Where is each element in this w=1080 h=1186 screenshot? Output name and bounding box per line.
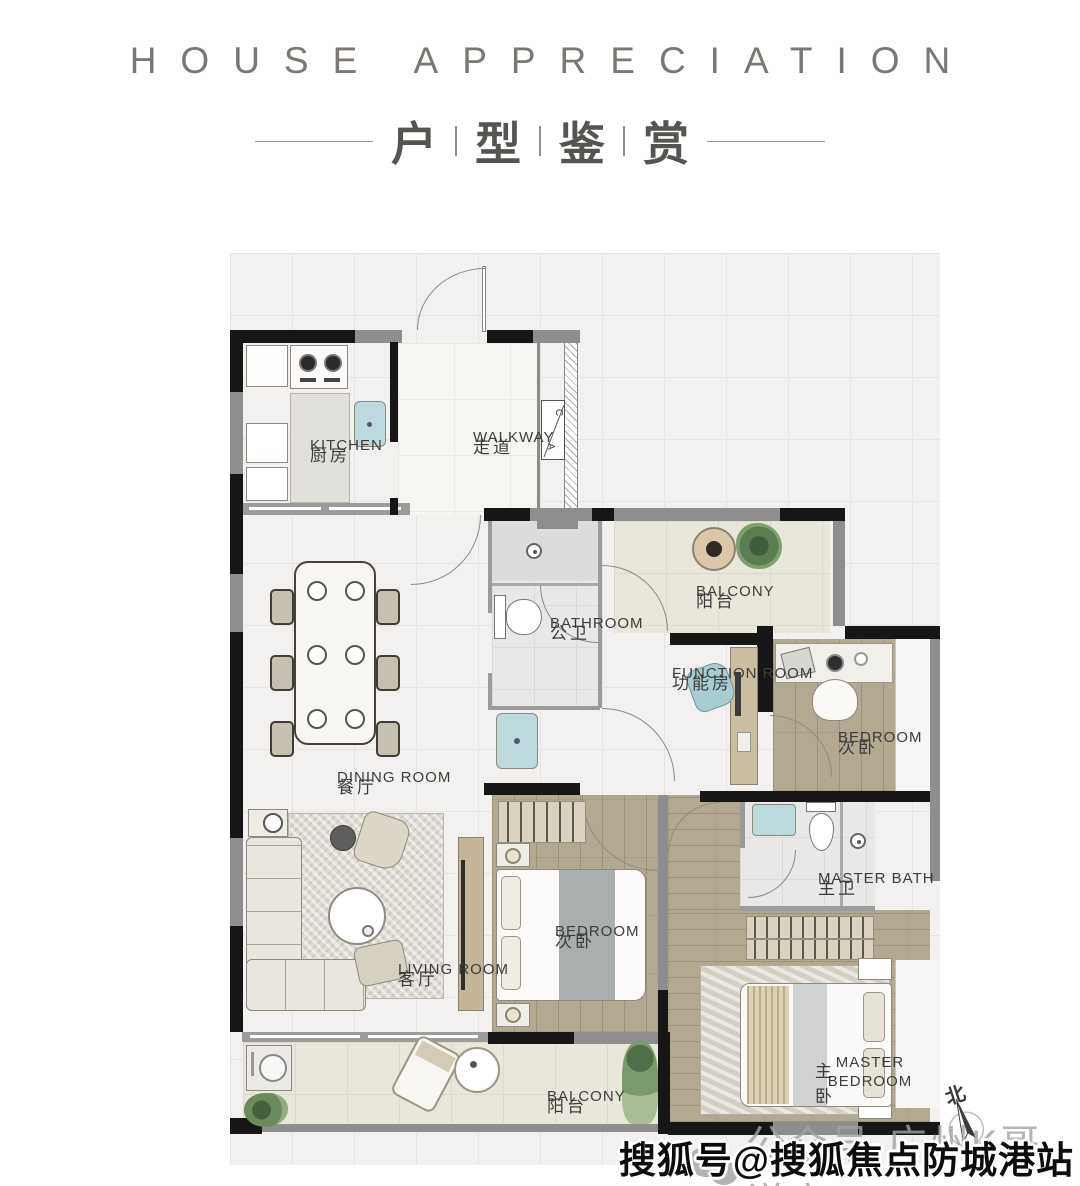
dining-chair — [270, 721, 294, 757]
kitchen-cabinet — [246, 467, 288, 501]
title-char-4: 赏 — [625, 108, 707, 174]
washer-panel — [251, 1052, 254, 1076]
toilet-bowl — [506, 599, 542, 635]
toilet-tank — [494, 595, 506, 639]
dining-chair — [376, 589, 400, 625]
desk-bowl — [826, 654, 844, 672]
title-char-2: 型 — [457, 108, 539, 174]
floor-plan: A C — [230, 253, 940, 1165]
kitchen-cabinet — [246, 423, 288, 463]
place-setting — [307, 645, 327, 665]
stove-knob — [300, 378, 316, 382]
page-title-english: HOUSE APPRECIATION — [0, 40, 1080, 82]
wall — [488, 1032, 574, 1044]
toilet-tank — [806, 802, 836, 812]
dining-chair — [376, 721, 400, 757]
wall-thin — [488, 673, 492, 710]
fridge — [246, 345, 288, 387]
kitchen-sliding-door — [243, 503, 410, 515]
walkway-door-swing — [411, 515, 481, 585]
wall-thin — [492, 706, 600, 710]
bedroom-right-baywindow — [895, 639, 930, 791]
nightstand — [496, 843, 530, 867]
closet-hatch — [564, 343, 578, 515]
wall-thin — [598, 633, 602, 708]
title-line-left — [255, 141, 373, 142]
wall — [780, 508, 845, 521]
wardrobe-divider — [747, 938, 875, 940]
page-title-chinese: 户 型 鉴 赏 — [0, 108, 1080, 174]
nightstand — [496, 1003, 530, 1027]
wall-window — [530, 508, 592, 521]
potted-plant — [736, 523, 782, 569]
table-decor — [362, 925, 374, 937]
wall — [484, 508, 530, 521]
lamp — [505, 1007, 521, 1023]
balcony-table — [692, 527, 736, 571]
place-setting — [345, 645, 365, 665]
bed-throw — [747, 986, 789, 1104]
bedroom-chair — [812, 679, 858, 721]
side-stool — [330, 825, 356, 851]
wall — [670, 633, 760, 645]
dining-chair — [376, 655, 400, 691]
master-sink — [752, 804, 796, 836]
nightstand — [858, 958, 892, 980]
wall-window — [230, 574, 243, 632]
wall-window — [533, 330, 580, 343]
wall — [845, 626, 940, 639]
pillow — [863, 992, 885, 1042]
shower-head-dot — [533, 550, 537, 554]
table-bowl — [706, 541, 722, 557]
balcony-round-table — [454, 1047, 500, 1093]
shower-head — [526, 543, 542, 559]
sohu-watermark-text: 搜狐号@搜狐焦点防城港站 — [619, 1130, 1074, 1184]
wall-thin — [740, 802, 745, 848]
wall — [230, 926, 243, 1032]
wardrobe — [498, 801, 586, 843]
pillow — [501, 876, 521, 930]
wall — [930, 791, 940, 881]
sliding-door-panel — [249, 507, 321, 510]
floorplan-poster: { "header": { "title_en": "HOUSE APPRECI… — [0, 0, 1080, 1186]
shower-head-dot — [857, 840, 861, 844]
sink-drain — [367, 422, 372, 427]
wall-window — [833, 521, 845, 626]
wall — [230, 474, 243, 574]
shower-head — [850, 833, 866, 849]
wall — [658, 1032, 670, 1134]
desk-cup — [854, 652, 868, 666]
function-room-door-swing — [602, 708, 675, 781]
tv-console — [458, 837, 484, 1011]
stove-knob — [324, 378, 340, 382]
wall-window — [614, 508, 780, 521]
place-setting — [345, 709, 365, 729]
washing-machine — [246, 1045, 292, 1091]
wall — [230, 330, 355, 343]
wall — [487, 330, 533, 343]
desk-papers — [737, 732, 751, 752]
sliding-door-panel — [250, 1035, 360, 1038]
entrance-door-swing — [417, 268, 485, 330]
wall-window — [930, 639, 940, 791]
wall — [390, 342, 398, 442]
balcony-railing — [262, 1124, 658, 1132]
sliding-door — [242, 1032, 488, 1042]
wall-window — [230, 392, 243, 474]
wall — [390, 498, 398, 515]
wall — [592, 508, 614, 521]
lamp — [505, 848, 521, 864]
sink-drain — [514, 738, 520, 744]
place-setting — [307, 709, 327, 729]
dining-table — [294, 561, 376, 745]
place-setting — [345, 581, 365, 601]
stove — [290, 345, 348, 389]
wall-thin — [488, 521, 492, 613]
master-wardrobe — [746, 916, 874, 960]
place-setting — [307, 581, 327, 601]
coffee-table — [328, 887, 386, 945]
bathroom-sink — [496, 713, 538, 769]
ac-label-c: C — [553, 409, 564, 416]
wall — [658, 795, 668, 990]
side-cabinet — [248, 809, 288, 837]
title-char-3: 鉴 — [541, 108, 623, 174]
wall — [700, 791, 940, 802]
washer-door — [259, 1054, 287, 1082]
shower-area — [492, 521, 598, 581]
wall — [484, 783, 580, 795]
wall-thin — [740, 906, 875, 911]
title-line-right — [707, 141, 825, 142]
clock — [263, 813, 283, 833]
dining-chair — [270, 589, 294, 625]
planter-box — [622, 1042, 658, 1124]
table-decor — [470, 1061, 477, 1068]
sofa-chaise — [246, 959, 366, 1011]
title-char-1: 户 — [373, 108, 455, 174]
burner — [299, 354, 317, 372]
dining-chair — [270, 655, 294, 691]
wall — [230, 330, 243, 392]
burner — [324, 354, 342, 372]
wall-window — [230, 838, 243, 926]
wall — [230, 632, 243, 838]
